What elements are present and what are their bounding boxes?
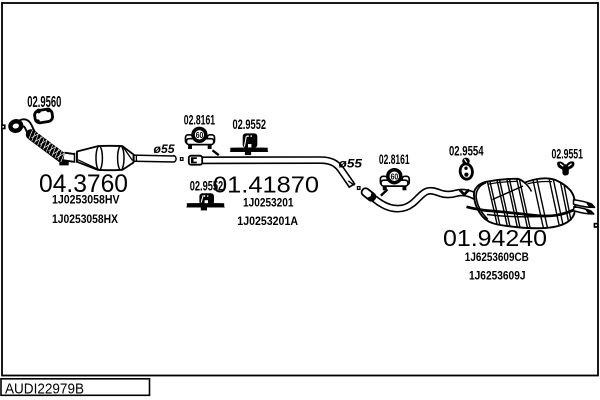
svg-text:1J0253201: 1J0253201: [243, 197, 294, 209]
svg-text:60: 60: [391, 171, 399, 181]
svg-text:02.9551: 02.9551: [552, 145, 584, 161]
svg-text:02.9552: 02.9552: [190, 178, 224, 194]
svg-text:01.41870: 01.41870: [213, 171, 319, 197]
svg-text:01.94240: 01.94240: [443, 225, 547, 251]
svg-text:1J6253609J: 1J6253609J: [469, 270, 526, 282]
svg-text:1J0253058HV: 1J0253058HV: [52, 195, 120, 207]
svg-text:ø55: ø55: [154, 144, 176, 156]
svg-text:1J6253609CB: 1J6253609CB: [465, 252, 529, 264]
svg-text:02.8161: 02.8161: [379, 151, 410, 167]
svg-text:ø55: ø55: [339, 157, 363, 171]
svg-text:AUDI22979B: AUDI22979B: [5, 380, 84, 397]
svg-text:02.9554: 02.9554: [449, 142, 484, 158]
svg-text:02.9552: 02.9552: [233, 116, 267, 132]
svg-text:1J0253201A: 1J0253201A: [237, 216, 298, 228]
svg-text:02.8161: 02.8161: [184, 112, 215, 128]
svg-text:1J0253058HX: 1J0253058HX: [52, 214, 118, 226]
svg-text:60: 60: [196, 130, 204, 140]
